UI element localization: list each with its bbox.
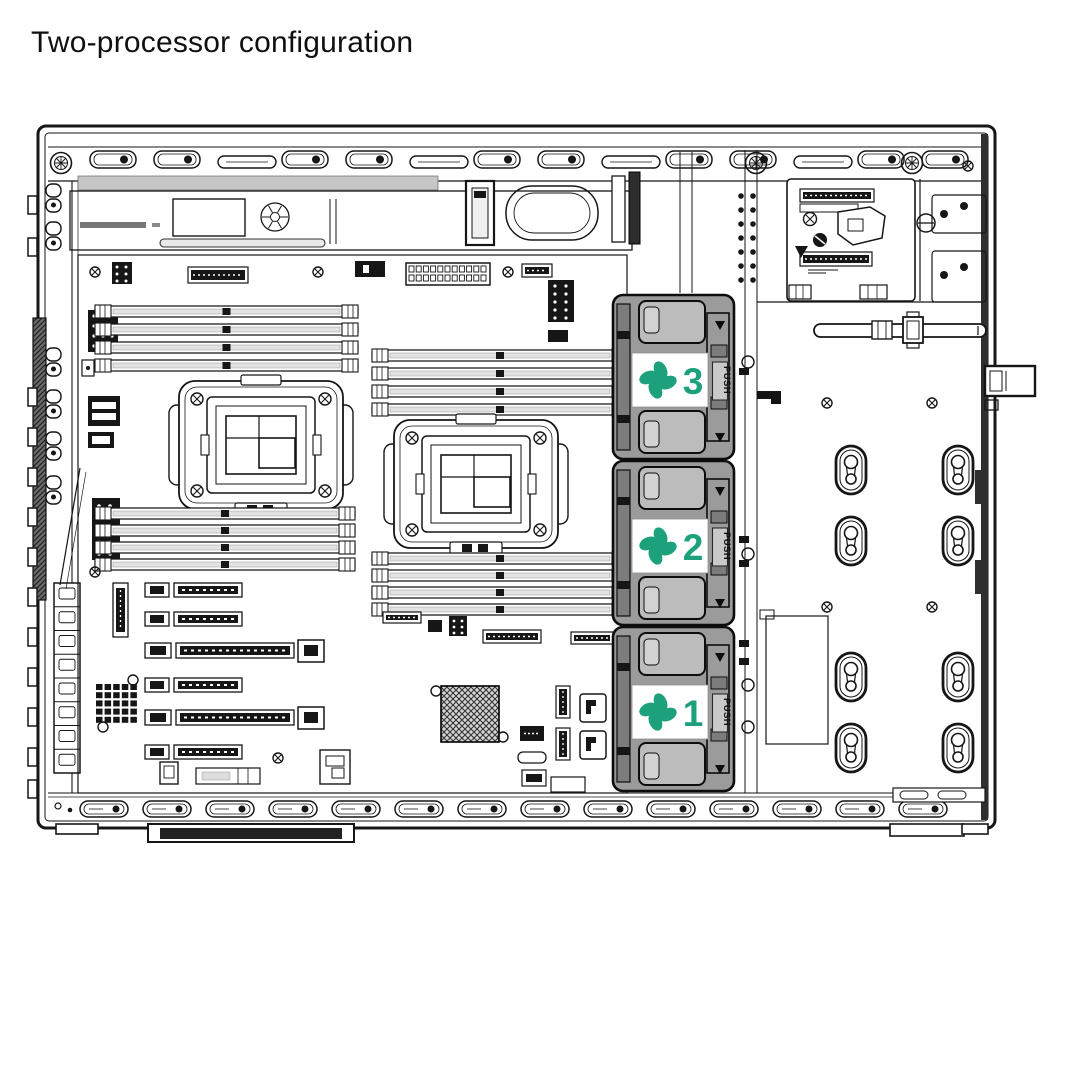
left-edge-tab: [28, 468, 37, 486]
bracket: [320, 750, 350, 784]
rear-cutout: [46, 476, 61, 489]
vent-slot: [206, 801, 254, 817]
server-internal-diagram: 3 PUSH 2 PUSH: [0, 0, 1080, 1080]
screw-dark: [960, 202, 968, 210]
sata-port: [580, 694, 606, 722]
left-edge-tab: [28, 668, 37, 686]
rear-cutout: [46, 348, 61, 361]
rail-mark: [739, 640, 749, 647]
fan-number: 2: [683, 527, 704, 568]
cpu-socket-1: [169, 375, 353, 515]
sata-port: [580, 731, 606, 759]
keyhole-mount: [836, 446, 866, 494]
pcie-slot-short: [145, 583, 242, 597]
rear-cutout: [46, 222, 61, 235]
vent-slot: [346, 151, 392, 168]
vent-slot: [90, 151, 136, 168]
left-edge-tab: [28, 388, 37, 406]
rail-mark: [739, 536, 749, 543]
pcie-slot-short: [145, 612, 242, 626]
vent-slot: [458, 801, 506, 817]
io-port: [88, 396, 120, 426]
bottom-ledge: [893, 788, 985, 802]
push-label: PUSH: [721, 698, 732, 726]
cable-clip: [838, 207, 885, 245]
keyhole-mount: [836, 724, 866, 772]
keyhole-mount: [836, 517, 866, 565]
vent-slot: [282, 151, 328, 168]
port: [160, 762, 178, 784]
left-edge-tab: [28, 428, 37, 446]
rear-cutout: [46, 184, 61, 197]
tray-rod: [160, 239, 325, 247]
vent-slot: [773, 801, 821, 817]
vent-slot: [332, 801, 380, 817]
keyhole-mount: [836, 653, 866, 701]
vent-slot: [143, 801, 191, 817]
left-edge-tab: [28, 548, 37, 566]
vent-slot: [922, 151, 968, 168]
vent-slot: [584, 801, 632, 817]
left-edge-tab: [28, 588, 37, 606]
vent-slot: [858, 151, 904, 168]
vent-slot: [521, 801, 569, 817]
keyhole-mount: [943, 653, 973, 701]
power-connector: [355, 261, 385, 277]
push-label: PUSH: [721, 366, 732, 394]
header: [112, 262, 132, 284]
rail-mark: [739, 560, 749, 567]
fan-number: 3: [683, 361, 704, 402]
pcie-slot-short: [145, 678, 242, 692]
vent-slot: [154, 151, 200, 168]
foot-tab: [890, 824, 964, 836]
left-edge-tab: [28, 780, 37, 798]
vent-slot: [899, 801, 947, 817]
screw-dark: [940, 271, 948, 279]
keyhole-mount: [943, 446, 973, 494]
keyhole-mount: [943, 517, 973, 565]
top-rail: [78, 176, 438, 190]
vent-slot: [80, 801, 128, 817]
screw-dark: [960, 263, 968, 271]
pcie-slot-short: [145, 745, 242, 759]
vent-slot: [395, 801, 443, 817]
rail-mark: [739, 658, 749, 665]
vent-slot: [538, 151, 584, 168]
left-edge-tab: [28, 708, 37, 726]
left-edge-tab: [28, 628, 37, 646]
left-edge-tab: [28, 748, 37, 766]
vent-slot: [647, 801, 695, 817]
rear-cutout: [46, 432, 61, 445]
left-edge-tab: [28, 196, 37, 214]
page: Two-processor configuration: [0, 0, 1080, 1080]
rail-mark: [739, 368, 749, 375]
left-edge-tab: [28, 238, 37, 256]
fan-number: 1: [683, 693, 704, 734]
vent-slot: [710, 801, 758, 817]
vent-slot: [269, 801, 317, 817]
header: [449, 616, 467, 636]
cpu-socket-2: [384, 414, 568, 554]
vent-slot: [666, 151, 712, 168]
left-edge-tab: [28, 508, 37, 526]
dark-bar: [629, 172, 640, 244]
foot-tab: [56, 824, 98, 834]
header: [428, 620, 442, 632]
vent-slot: [474, 151, 520, 168]
board-marking: [80, 222, 146, 228]
foot-tab: [962, 824, 988, 834]
push-label: PUSH: [721, 532, 732, 560]
vent-slot: [836, 801, 884, 817]
chipset-heatsink: [441, 686, 499, 742]
screw-dark: [940, 210, 948, 218]
keyhole-mount: [943, 724, 973, 772]
front-panel-header: [548, 280, 574, 322]
rear-cutout: [46, 390, 61, 403]
